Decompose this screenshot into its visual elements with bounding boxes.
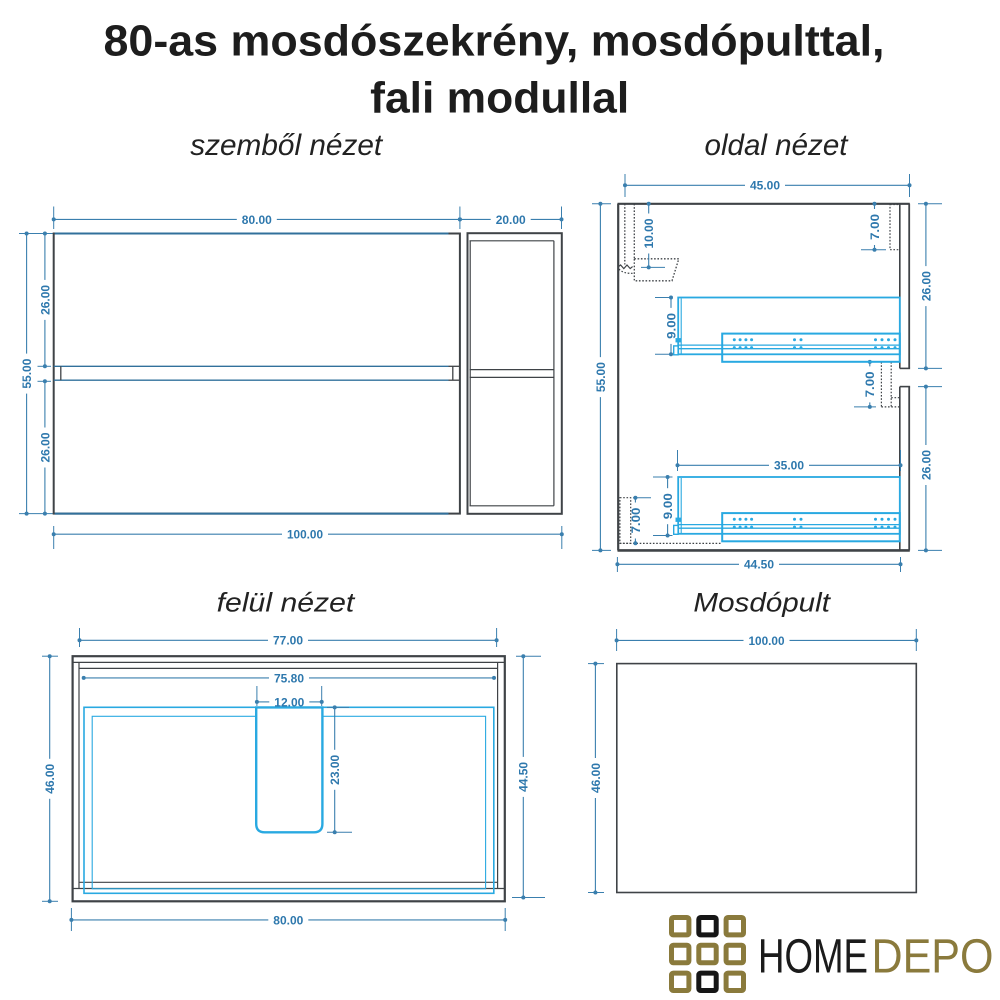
svg-text:9.00: 9.00 <box>664 313 678 339</box>
svg-text:26.00: 26.00 <box>919 450 933 480</box>
svg-text:45.00: 45.00 <box>750 179 780 193</box>
svg-text:80.00: 80.00 <box>242 213 272 227</box>
svg-text:80.00: 80.00 <box>273 913 303 927</box>
svg-text:26.00: 26.00 <box>38 285 52 315</box>
svg-text:26.00: 26.00 <box>38 432 52 462</box>
svg-text:23.00: 23.00 <box>328 754 342 784</box>
svg-text:fali modullal: fali modullal <box>370 74 629 123</box>
svg-text:HOME: HOME <box>758 930 868 983</box>
svg-text:80-as mosdószekrény, mosdópult: 80-as mosdószekrény, mosdópulttal, <box>104 17 885 66</box>
svg-text:100.00: 100.00 <box>287 528 323 542</box>
svg-text:7.00: 7.00 <box>868 214 882 240</box>
svg-text:Mosdópult: Mosdópult <box>693 587 831 617</box>
svg-text:26.00: 26.00 <box>919 271 933 301</box>
svg-text:12.00: 12.00 <box>274 695 304 709</box>
svg-text:20.00: 20.00 <box>496 213 526 227</box>
svg-text:44.50: 44.50 <box>744 558 774 572</box>
svg-text:9.00: 9.00 <box>661 493 675 519</box>
svg-text:7.00: 7.00 <box>863 371 877 397</box>
svg-text:10.00: 10.00 <box>642 218 656 248</box>
svg-text:oldal nézet: oldal nézet <box>705 129 850 162</box>
svg-text:7.00: 7.00 <box>629 507 643 533</box>
svg-text:35.00: 35.00 <box>774 459 804 473</box>
svg-text:DEPO: DEPO <box>872 930 994 983</box>
svg-text:75.80: 75.80 <box>274 671 304 685</box>
svg-text:46.00: 46.00 <box>43 763 57 793</box>
svg-text:46.00: 46.00 <box>589 763 603 793</box>
svg-text:44.50: 44.50 <box>517 762 531 792</box>
svg-text:55.00: 55.00 <box>594 362 608 392</box>
svg-text:felül nézet: felül nézet <box>217 587 356 617</box>
svg-text:szemből nézet: szemből nézet <box>190 129 384 162</box>
svg-text:77.00: 77.00 <box>273 634 303 648</box>
svg-text:55.00: 55.00 <box>20 358 34 388</box>
svg-text:100.00: 100.00 <box>749 634 785 648</box>
